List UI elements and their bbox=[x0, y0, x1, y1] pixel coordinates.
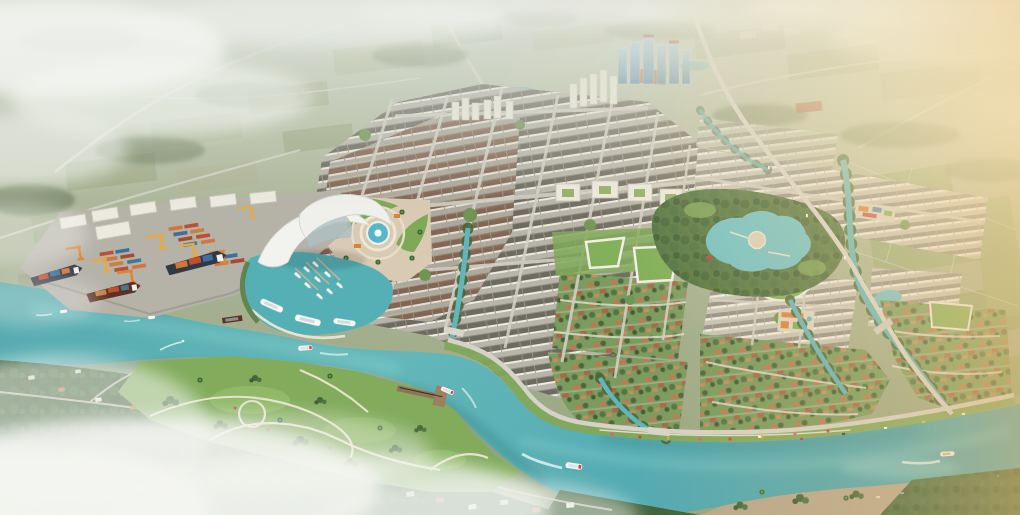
scene-canvas bbox=[0, 0, 1020, 515]
sunlight-glow bbox=[0, 0, 1020, 515]
aerial-render bbox=[0, 0, 1020, 515]
